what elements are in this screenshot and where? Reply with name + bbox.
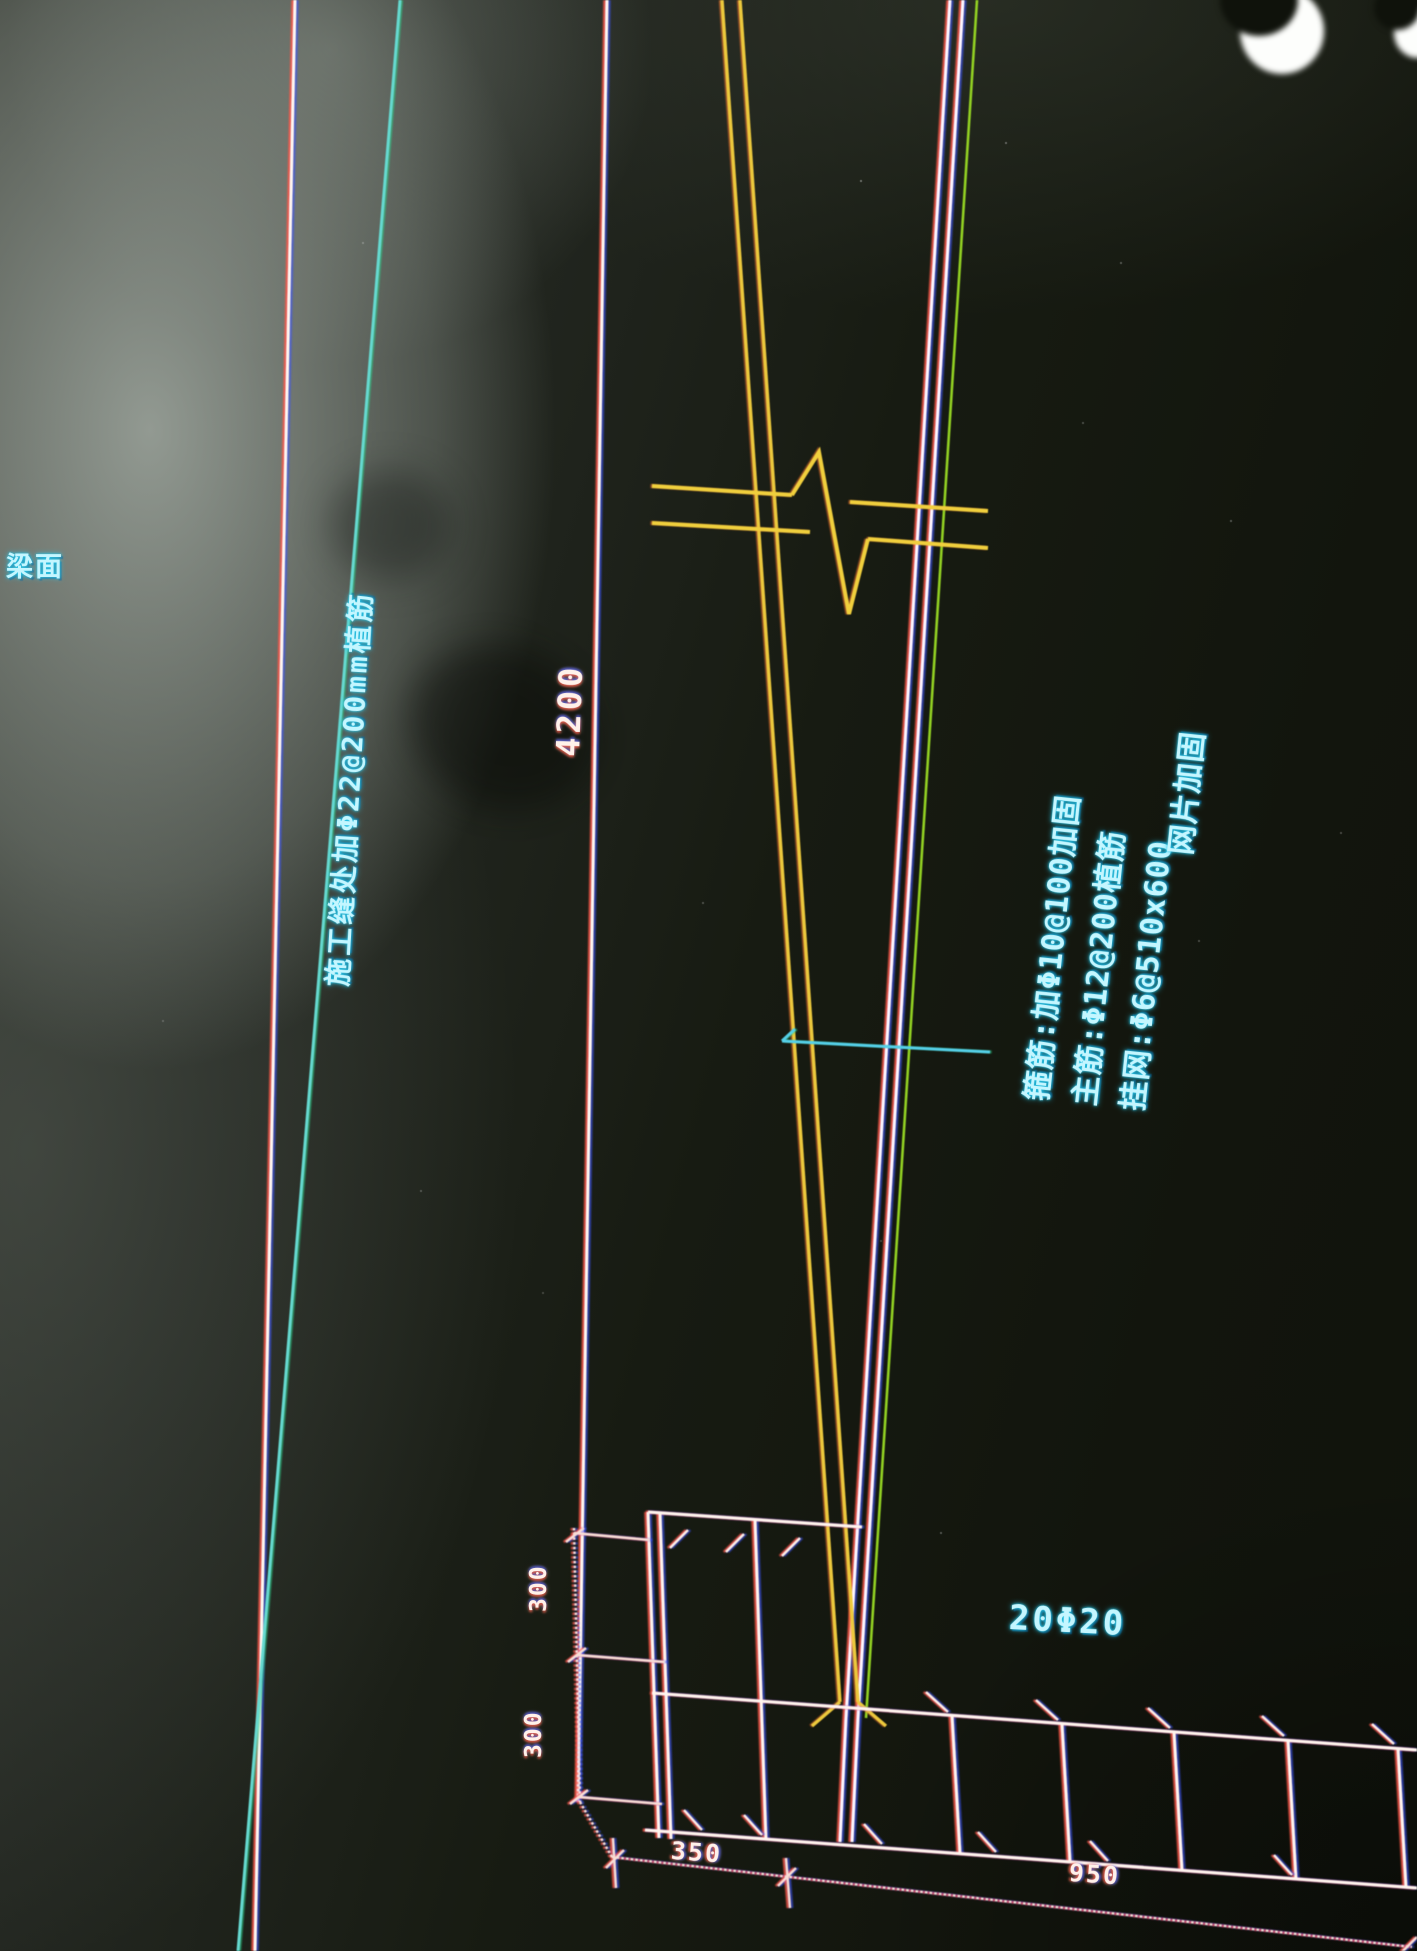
dim-column-height: 4200 xyxy=(549,663,590,757)
dim-step-bottom: 300 xyxy=(521,1710,547,1758)
camera-glare xyxy=(1228,0,1338,80)
dim-step-top: 300 xyxy=(526,1564,552,1612)
column-right-face-lines xyxy=(840,0,963,1842)
wall-edge-lines xyxy=(255,0,607,1951)
camera-glare xyxy=(1386,4,1417,64)
dim-bottom-950: 950 xyxy=(1068,1858,1121,1890)
rebar-count-label: 20Φ20 xyxy=(1008,1598,1127,1644)
cad-screen-photo: 梁面 施工缝处加Φ22@200mm植筋 4200 箍筋:加Φ10@100加固 主… xyxy=(0,0,1417,1951)
surface-label: 梁面 xyxy=(6,545,64,584)
dim-bottom-350: 350 xyxy=(670,1836,723,1868)
column-green-line xyxy=(866,0,977,1718)
footing-outline xyxy=(645,1512,1417,1888)
cad-linework xyxy=(0,0,1417,1951)
dust-specks xyxy=(0,0,2,2)
